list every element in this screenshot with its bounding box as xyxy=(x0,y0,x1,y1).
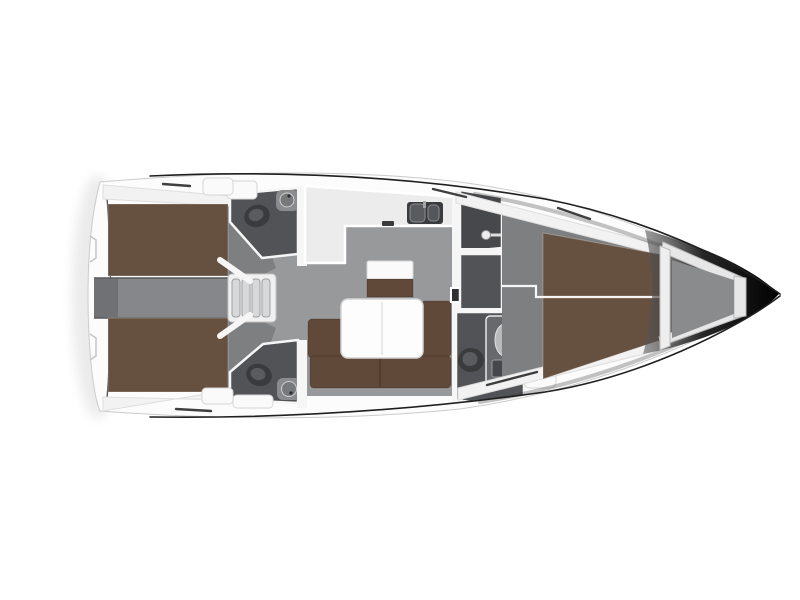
door-handle-icon xyxy=(482,231,491,240)
faucet-dot xyxy=(289,391,292,394)
toilet-seat xyxy=(463,352,478,366)
yacht-floorplan-image xyxy=(0,0,800,600)
faucet xyxy=(423,201,426,208)
head-wall xyxy=(297,340,307,408)
aft-cabin-starboard-berth xyxy=(108,318,228,392)
aft-corridor-end xyxy=(94,279,118,317)
companionway-step xyxy=(232,279,240,317)
salon-sofa-arm xyxy=(308,319,343,358)
sink-bowl xyxy=(410,204,425,222)
floorplan-svg xyxy=(0,0,800,600)
sink-bowl xyxy=(428,205,439,221)
companionway-step xyxy=(262,279,270,317)
forward-locker-room xyxy=(460,254,502,310)
aft-cabin-port-berth xyxy=(108,204,228,276)
companionway-step xyxy=(252,279,260,317)
deck-hatch xyxy=(203,178,233,195)
nav-bench-top xyxy=(367,261,413,280)
faucet-dot xyxy=(287,194,290,197)
head-bench xyxy=(233,395,273,408)
companionway-step xyxy=(242,279,250,317)
salon-sofa-back xyxy=(421,301,451,357)
anchor-locker-end xyxy=(734,276,746,318)
nav-bench xyxy=(367,279,413,297)
deck-hatch xyxy=(202,388,233,404)
forward-bulkhead xyxy=(660,246,670,350)
stove xyxy=(382,221,394,226)
washbasin-bowl xyxy=(280,193,294,207)
washbasin-bowl xyxy=(282,382,297,397)
